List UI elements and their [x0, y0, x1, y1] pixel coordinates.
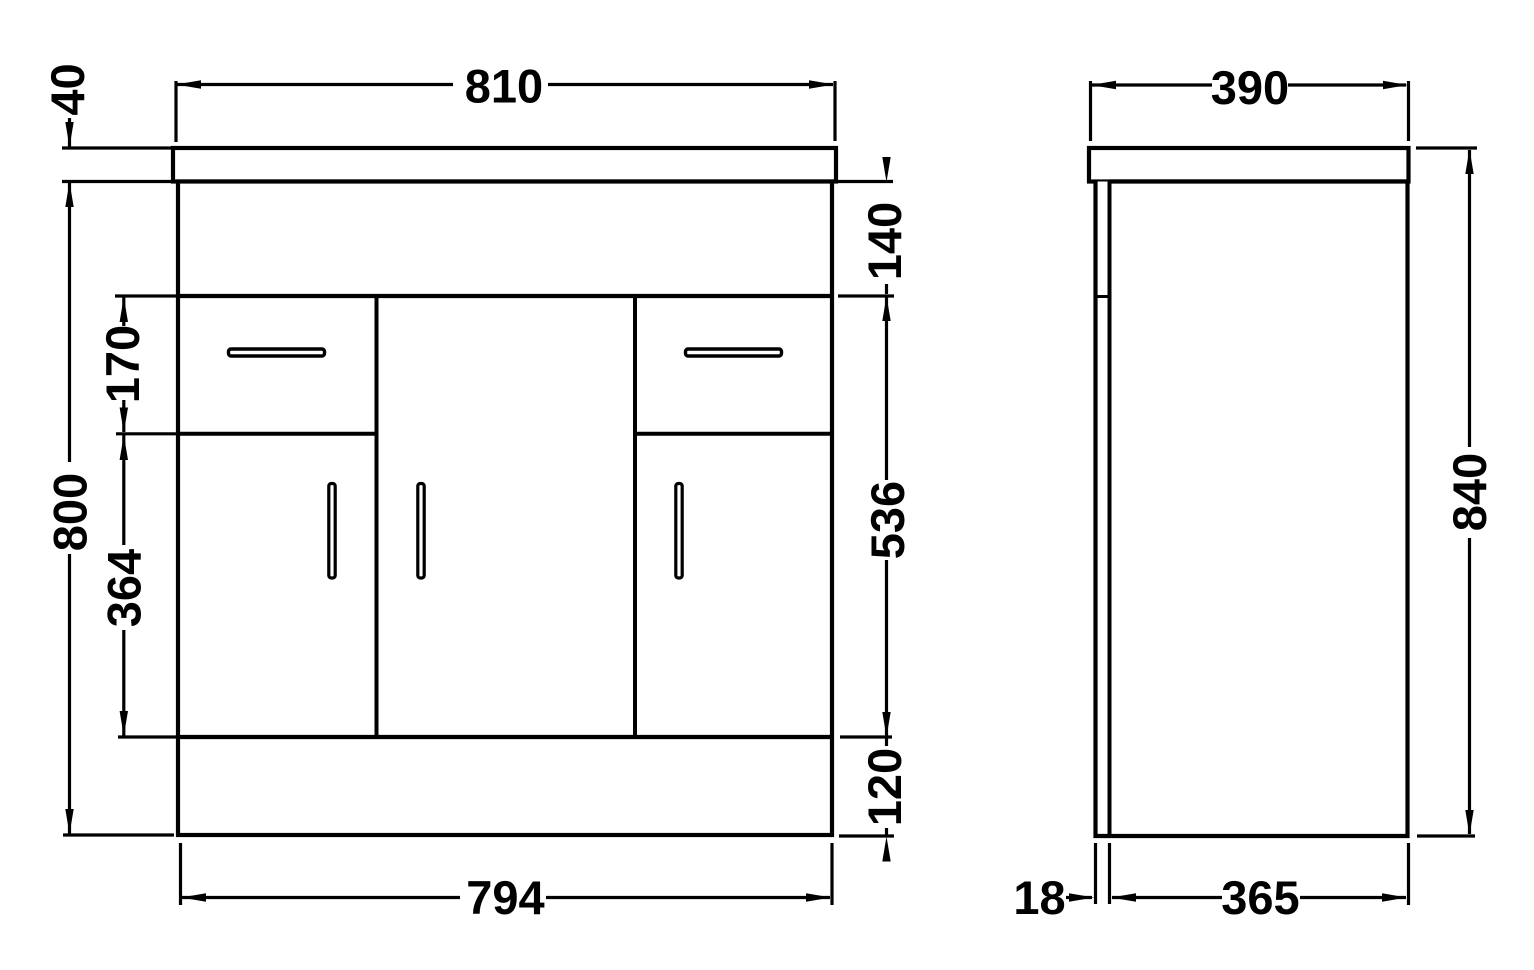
svg-text:40: 40 [41, 63, 94, 115]
svg-text:800: 800 [44, 473, 97, 551]
svg-text:120: 120 [858, 748, 911, 826]
svg-text:170: 170 [96, 325, 149, 403]
svg-text:365: 365 [1221, 871, 1299, 924]
svg-text:140: 140 [858, 202, 911, 280]
svg-text:364: 364 [98, 549, 151, 627]
svg-text:810: 810 [465, 60, 543, 113]
svg-text:794: 794 [466, 871, 544, 924]
svg-text:840: 840 [1443, 453, 1496, 531]
svg-text:536: 536 [861, 481, 914, 559]
svg-text:390: 390 [1211, 61, 1289, 114]
svg-text:18: 18 [1013, 871, 1065, 924]
